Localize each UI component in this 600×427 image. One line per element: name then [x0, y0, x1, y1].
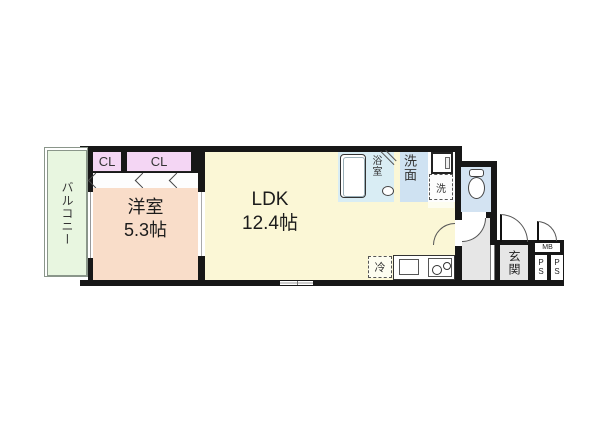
bathtub-inner-line [343, 157, 365, 197]
washroom-label: 洗面 [403, 154, 416, 182]
stove-icon [428, 258, 452, 277]
meter-box: MB [535, 243, 560, 252]
kitchen-sink-icon [399, 259, 419, 275]
fridge-label: 冷 [375, 259, 386, 275]
washroom-opening [428, 202, 454, 208]
fridge-space: 冷 [368, 256, 392, 278]
pipe-space-letter: S [538, 268, 543, 277]
meter-box-door-arc-icon [537, 221, 557, 241]
meter-box-label: MB [542, 244, 553, 251]
washer-label: 洗 [436, 180, 446, 195]
pipe-space: P S [551, 255, 563, 280]
entrance-room: 玄関 [500, 245, 528, 280]
bottom-wall [88, 280, 564, 286]
entrance-label: 玄関 [508, 250, 520, 276]
entrance-step [490, 245, 495, 280]
pipe-space: P S [535, 255, 547, 280]
bathtub-icon [340, 154, 366, 198]
ldk-area: 12.4帖 [205, 212, 335, 236]
ldk-doorway [455, 220, 462, 246]
floor-plan: バルコニー CL CL 浴室 洗面 洗 玄関 MB P S [0, 0, 600, 427]
sink-faucet-icon [445, 157, 450, 169]
ldk-text: LDK 12.4帖 [205, 188, 335, 236]
toilet-icon [469, 169, 484, 177]
closet-left-label: CL [99, 154, 116, 169]
bath-basin-icon [382, 186, 394, 196]
stove-burner-icon [443, 262, 451, 270]
balcony-floor: バルコニー [47, 150, 87, 276]
bedroom-area: 5.3帖 [93, 219, 198, 242]
closet-left: CL [93, 152, 121, 172]
stove-burner-icon [432, 265, 442, 275]
bedroom-label: 洋室 [93, 196, 198, 219]
washer-space: 洗 [429, 174, 453, 200]
sink-icon [431, 152, 453, 174]
ldk-window [280, 281, 313, 285]
entrance-door-arc-icon [500, 214, 528, 242]
bath-label: 浴室 [370, 155, 380, 177]
bedroom-text: 洋室 5.3帖 [93, 196, 198, 243]
bedroom-ldk-opening [198, 192, 205, 256]
ldk-label: LDK [205, 188, 335, 212]
toilet-icon [468, 177, 485, 199]
closet-right-label: CL [151, 154, 168, 169]
balcony: バルコニー [44, 147, 88, 277]
balcony-label: バルコニー [61, 181, 73, 246]
pipe-space-letter: S [554, 268, 559, 277]
closet-right: CL [127, 152, 191, 172]
